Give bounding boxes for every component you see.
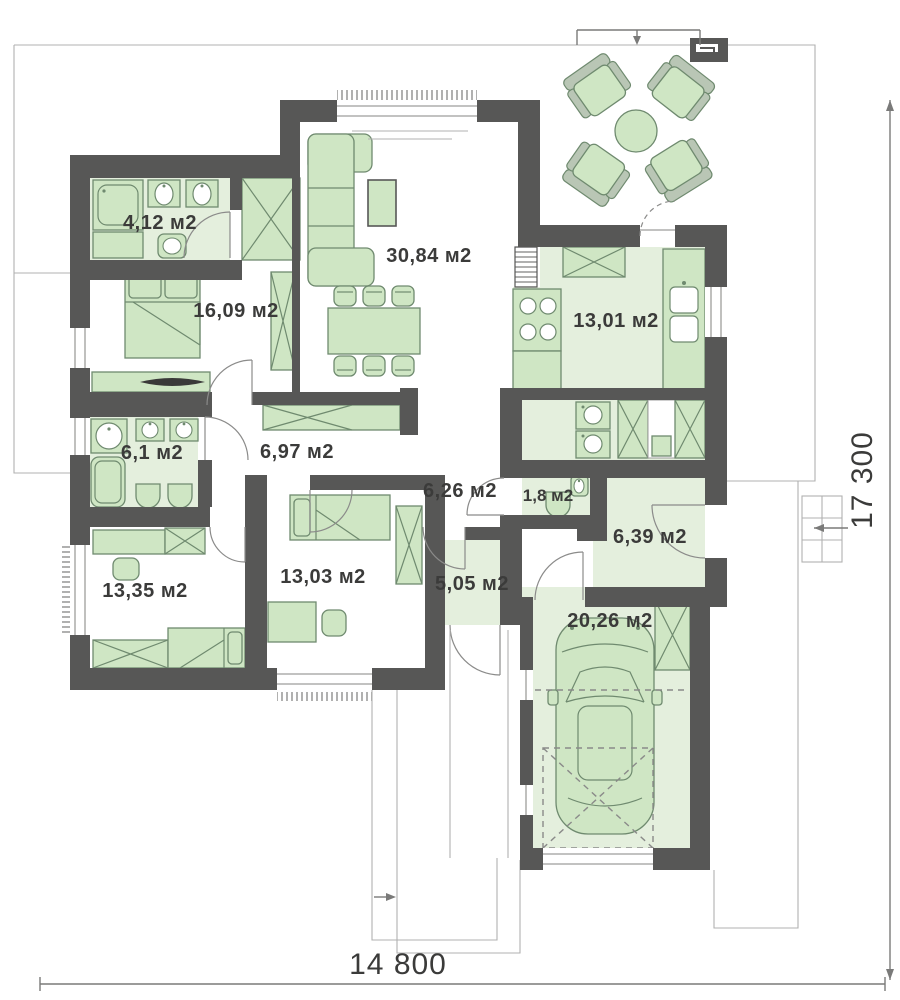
- room-label-bathroom-2: 6,1 м2: [121, 442, 183, 464]
- window-icon: [277, 668, 372, 701]
- floor-plan-canvas: 4,12 м2 16,09 м2 30,84 м2 13,01 м2 6,1 м…: [0, 0, 900, 1000]
- garage-gate-icon: [543, 848, 653, 870]
- room-label-garage: 20,26 м2: [567, 610, 653, 632]
- entry-arrow-icon: [814, 524, 848, 532]
- dimension-right: [886, 100, 894, 980]
- chimney-icon: [690, 38, 728, 62]
- window-icon: [520, 670, 533, 700]
- room-label-bedroom-child-2: 13,03 м2: [280, 566, 366, 588]
- wardrobe-icon: [242, 178, 300, 260]
- window-icon: [62, 545, 90, 635]
- patio-arrow-icon: [374, 893, 396, 901]
- room-label-kitchen: 13,01 м2: [573, 310, 659, 332]
- window-icon: [70, 418, 90, 455]
- door-icon: [450, 625, 500, 675]
- room-label-bedroom-child-1: 13,35 м2: [102, 580, 188, 602]
- sink-icon: [170, 419, 198, 441]
- room-label-hallway: 6,97 м2: [260, 441, 334, 463]
- toilet-icon: [136, 484, 160, 508]
- car-icon: [548, 618, 662, 834]
- kitchen-sink-icon: [670, 281, 698, 342]
- door-icon: [207, 360, 252, 405]
- window-icon: [705, 287, 727, 337]
- dimension-height-label: 17 300: [846, 431, 879, 529]
- window-icon: [337, 90, 477, 122]
- room-label-mudroom: 5,05 м2: [435, 573, 509, 595]
- garage-wardrobe-icon: [655, 600, 690, 670]
- room-label-bathroom-1: 4,12 м2: [123, 212, 197, 234]
- toilet-icon: [158, 234, 186, 258]
- terrace-door-icon: [640, 201, 675, 247]
- laundry-icons: [576, 400, 705, 458]
- terrace-furniture-icon: [558, 50, 719, 210]
- sink-icon: [186, 180, 218, 207]
- floor-plan: 4,12 м2 16,09 м2 30,84 м2 13,01 м2 6,1 м…: [0, 0, 900, 1000]
- room-label-bedroom-main: 16,09 м2: [193, 300, 279, 322]
- dimension-width-label: 14 800: [349, 948, 447, 981]
- ridge-marker: [577, 30, 700, 45]
- sofa-icon: [308, 134, 374, 286]
- room-label-living-room: 30,84 м2: [386, 245, 472, 267]
- room-label-corridor: 6,26 м2: [423, 480, 497, 502]
- room-label-wc: 1,8 м2: [523, 486, 573, 505]
- hall-cabinet-icon: [263, 405, 400, 430]
- sink-icon: [148, 180, 180, 207]
- bed-icon: [290, 495, 390, 540]
- tv-dresser-icon: [92, 372, 210, 392]
- dining-set-icon: [328, 286, 420, 376]
- sink-icon: [136, 419, 164, 441]
- sink-icon: [571, 476, 588, 496]
- bed-icon: [168, 628, 245, 668]
- radiator-icon: [515, 247, 537, 287]
- bidet-icon: [168, 484, 192, 508]
- room-label-entrance-hall: 6,39 м2: [613, 526, 687, 548]
- dimension-bottom: [40, 977, 885, 991]
- coffee-table-icon: [368, 180, 396, 226]
- window-icon: [70, 328, 90, 368]
- door-icon: [210, 527, 245, 562]
- door-icon: [205, 417, 248, 460]
- double-bed-icon: [125, 272, 200, 358]
- window-icon: [520, 785, 533, 815]
- side-passage-lines: [450, 630, 508, 858]
